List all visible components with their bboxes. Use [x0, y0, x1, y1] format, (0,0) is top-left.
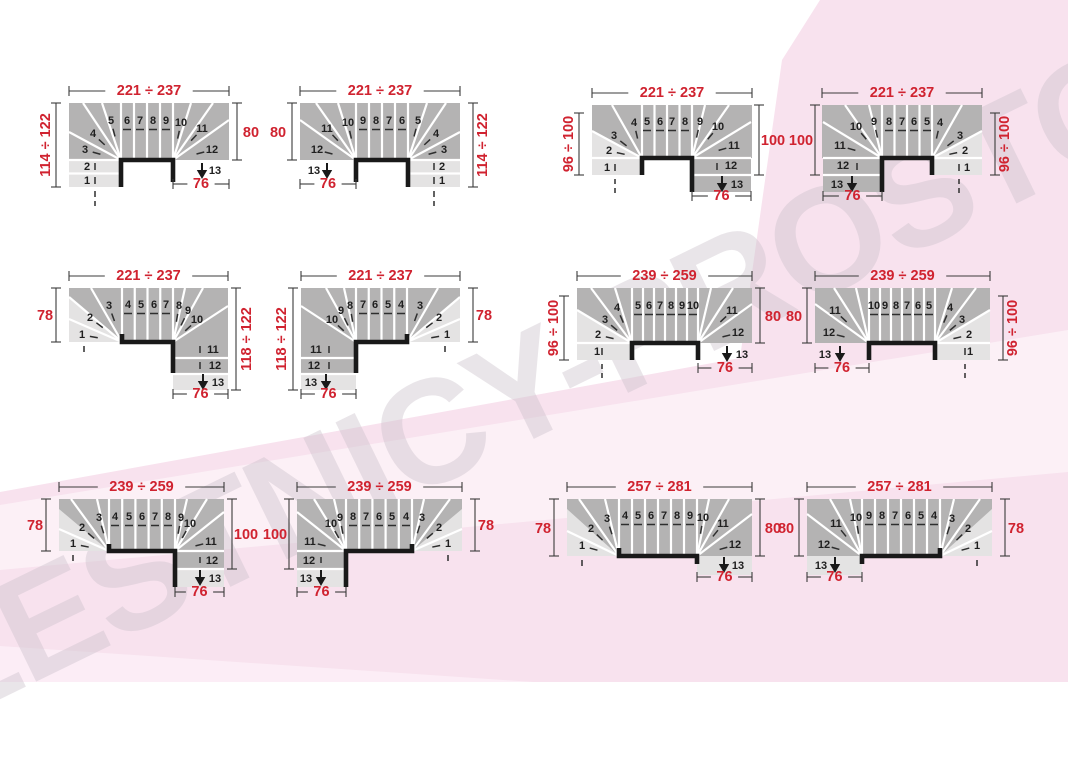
step-number: 4 — [947, 302, 954, 314]
step-number: 13 — [300, 573, 312, 585]
step-number: 1 — [445, 538, 451, 550]
step-number: 7 — [899, 116, 905, 128]
dim-top-label: 221 ÷ 237 — [348, 268, 412, 284]
step-number: 11 — [830, 518, 842, 530]
stairwell-edge-line — [356, 160, 408, 187]
step-number: 6 — [657, 116, 663, 128]
step-number: 11 — [728, 140, 740, 152]
step-number: 12 — [823, 327, 835, 339]
step-number: 3 — [106, 300, 112, 312]
stairwell-edge-line — [882, 158, 932, 192]
step-number: 2 — [595, 329, 601, 341]
dim-bottom-label: 76 — [320, 386, 336, 402]
step-number: 8 — [886, 116, 892, 128]
step-number: 12 — [308, 360, 320, 372]
step-number: 7 — [657, 300, 663, 312]
dim-bottom-label: 76 — [826, 569, 842, 585]
step-number: 7 — [892, 510, 898, 522]
step-number: 3 — [604, 513, 610, 525]
step-number: 7 — [904, 300, 910, 312]
step-number: 5 — [926, 300, 932, 312]
step-number: 4 — [403, 511, 410, 523]
stairwell-edge-line — [109, 544, 175, 587]
step-number: 13 — [212, 377, 224, 389]
step-number: 3 — [96, 512, 102, 524]
dim-left-label: 80 — [270, 125, 286, 141]
dim-right-label: 78 — [1008, 521, 1024, 537]
step-number: 13 — [736, 349, 748, 361]
dim-left-label: 118 ÷ 122 — [274, 307, 290, 371]
step-number: 12 — [303, 555, 315, 567]
dim-bottom-label: 76 — [844, 188, 860, 204]
step-number: 4 — [433, 128, 440, 140]
step-number: 2 — [965, 523, 971, 535]
step-number: 7 — [363, 511, 369, 523]
step-number: 3 — [441, 144, 447, 156]
step-number: 1 — [79, 329, 85, 341]
step-number: 2 — [436, 312, 442, 324]
step-number: 1 — [604, 162, 610, 174]
step-number: 3 — [959, 314, 965, 326]
step-number: 7 — [386, 115, 392, 127]
step-number: 8 — [150, 115, 156, 127]
step-number: 6 — [915, 300, 921, 312]
dim-top-label: 221 ÷ 237 — [116, 268, 180, 284]
step-number: 6 — [376, 511, 382, 523]
dim-top-label: 239 ÷ 259 — [347, 479, 411, 495]
step-number: 2 — [84, 161, 90, 173]
step-number: 10 — [175, 117, 187, 129]
dim-right-label: 78 — [476, 308, 492, 324]
dim-right-label: 96 ÷ 100 — [1005, 300, 1021, 356]
step-number: 11 — [207, 344, 219, 356]
step-number: 9 — [882, 300, 888, 312]
dim-left-label: 78 — [535, 521, 551, 537]
step-number: 10 — [342, 117, 354, 129]
step-number: 11 — [834, 140, 846, 152]
dim-bottom-label: 76 — [192, 386, 208, 402]
dim-left-label: 114 ÷ 122 — [38, 113, 54, 177]
dim-bottom-label: 76 — [713, 188, 729, 204]
step-number: 8 — [347, 300, 353, 312]
step-number: 3 — [417, 300, 423, 312]
step-number: 12 — [311, 144, 323, 156]
dim-left-label: 100 — [789, 133, 813, 149]
step-number: 11 — [205, 536, 217, 548]
step-number: 8 — [176, 300, 182, 312]
step-number: 2 — [79, 522, 85, 534]
dim-top-label: 221 ÷ 237 — [117, 83, 181, 99]
step-number: 3 — [949, 513, 955, 525]
step-number: 3 — [957, 130, 963, 142]
step-number: 9 — [687, 510, 693, 522]
step-number: 7 — [661, 510, 667, 522]
step-number: 7 — [360, 299, 366, 311]
stairwell-edge-line — [346, 544, 412, 587]
step-number: 7 — [152, 511, 158, 523]
dim-left-label: 78 — [27, 518, 43, 534]
step-number: 6 — [646, 300, 652, 312]
step-number: 4 — [614, 302, 621, 314]
step-number: 8 — [879, 510, 885, 522]
step-number: 10 — [191, 314, 203, 326]
step-number: 4 — [931, 510, 938, 522]
step-number: 11 — [304, 536, 316, 548]
step-number: 8 — [350, 511, 356, 523]
stair-diagram-2: 12345678910111213221 ÷ 23776114 ÷ 12280 — [240, 68, 520, 227]
stair-diagram-4: 12345678910111213221 ÷ 2377696 ÷ 100100 — [762, 70, 1042, 227]
step-number: 13 — [308, 165, 320, 177]
dim-bottom-label: 76 — [320, 176, 336, 192]
step-number: 1 — [70, 538, 76, 550]
step-number: 8 — [893, 300, 899, 312]
step-number: 1 — [594, 346, 600, 358]
stairwell-edge-line — [869, 343, 935, 360]
step-number: 10 — [868, 300, 880, 312]
dim-bottom-label: 76 — [193, 176, 209, 192]
step-number: 6 — [905, 510, 911, 522]
dim-top-label: 257 ÷ 281 — [627, 479, 691, 495]
stair-diagram-8: 12345678910111213239 ÷ 2597696 ÷ 10080 — [755, 253, 1050, 404]
step-number: 6 — [151, 299, 157, 311]
stair-diagram-12: 12345678910111213257 ÷ 281767880 — [747, 464, 1052, 613]
step-number: 8 — [668, 300, 674, 312]
tread-area — [935, 343, 990, 360]
step-number: 4 — [398, 299, 405, 311]
step-number: 10 — [326, 314, 338, 326]
step-number: 3 — [419, 512, 425, 524]
step-number: 10 — [850, 121, 862, 133]
step-number: 11 — [310, 344, 322, 356]
dim-bottom-label: 76 — [717, 360, 733, 376]
step-number: 6 — [648, 510, 654, 522]
stairwell-edge-line — [632, 343, 698, 360]
dim-bottom-label: 76 — [313, 584, 329, 600]
step-number: 2 — [439, 161, 445, 173]
dim-top-label: 239 ÷ 259 — [109, 479, 173, 495]
step-number: 5 — [108, 115, 114, 127]
step-number: 9 — [360, 115, 366, 127]
step-number: 1 — [444, 329, 450, 341]
step-number: 11 — [717, 518, 729, 530]
step-number: 12 — [837, 160, 849, 172]
step-number: 6 — [372, 299, 378, 311]
step-number: 11 — [726, 305, 738, 317]
stair-diagram-6: 12345678910111213221 ÷ 2377678118 ÷ 122 — [241, 253, 520, 428]
dim-left-label: 96 ÷ 100 — [561, 116, 577, 172]
dim-top-label: 221 ÷ 237 — [640, 85, 704, 101]
stairwell-edge-line — [121, 160, 173, 187]
tread-area — [592, 158, 642, 175]
step-number: 4 — [125, 299, 132, 311]
step-number: 4 — [622, 510, 629, 522]
step-number: 8 — [165, 511, 171, 523]
dim-right-label: 114 ÷ 122 — [475, 113, 491, 177]
dim-right-label: 78 — [478, 518, 494, 534]
dim-bottom-label: 76 — [191, 584, 207, 600]
stairwell-edge-line — [122, 334, 173, 373]
step-number: 5 — [635, 300, 641, 312]
step-number: 2 — [966, 329, 972, 341]
dim-left-label: 80 — [786, 309, 802, 325]
dim-bottom-label: 76 — [834, 360, 850, 376]
step-number: 7 — [669, 116, 675, 128]
step-number: 9 — [866, 510, 872, 522]
step-number: 4 — [112, 511, 119, 523]
step-number: 12 — [818, 539, 830, 551]
tread-area — [932, 158, 982, 175]
step-number: 8 — [682, 116, 688, 128]
dim-top-label: 257 ÷ 281 — [867, 479, 931, 495]
step-number: 9 — [337, 512, 343, 524]
step-number: 2 — [588, 523, 594, 535]
tread-area — [577, 343, 632, 360]
step-number: 5 — [415, 115, 421, 127]
step-number: 5 — [924, 116, 930, 128]
step-number: 13 — [209, 573, 221, 585]
step-number: 3 — [611, 130, 617, 142]
step-number: 7 — [163, 299, 169, 311]
step-number: 11 — [196, 123, 208, 135]
stairwell-edge-line — [642, 158, 692, 192]
step-number: 12 — [729, 539, 741, 551]
step-number: 2 — [962, 145, 968, 157]
step-number: 2 — [87, 312, 93, 324]
step-number: 13 — [209, 165, 221, 177]
dim-left-label: 100 — [263, 527, 287, 543]
step-number: 9 — [338, 305, 344, 317]
step-number: 8 — [373, 115, 379, 127]
step-number: 11 — [829, 305, 841, 317]
step-number: 12 — [209, 360, 221, 372]
step-number: 10 — [325, 518, 337, 530]
step-number: 5 — [385, 299, 391, 311]
step-number: 5 — [389, 511, 395, 523]
step-number: 10 — [184, 518, 196, 530]
step-number: 6 — [124, 115, 130, 127]
step-number: 13 — [819, 349, 831, 361]
step-number: 5 — [126, 511, 132, 523]
step-number: 13 — [305, 377, 317, 389]
step-number: 4 — [631, 117, 638, 129]
dim-top-label: 221 ÷ 237 — [870, 85, 934, 101]
dim-left-label: 78 — [37, 308, 53, 324]
step-number: 10 — [712, 121, 724, 133]
step-number: 9 — [871, 116, 877, 128]
step-number: 12 — [725, 160, 737, 172]
step-number: 2 — [436, 522, 442, 534]
step-number: 5 — [918, 510, 924, 522]
step-number: 10 — [850, 512, 862, 524]
step-number: 4 — [937, 117, 944, 129]
step-number: 13 — [831, 179, 843, 191]
step-number: 1 — [967, 346, 973, 358]
stair-plan-grid: 12345678910111213221 ÷ 23776114 ÷ 122801… — [0, 0, 1068, 682]
step-number: 1 — [964, 162, 970, 174]
step-number: 5 — [138, 299, 144, 311]
step-number: 1 — [84, 175, 90, 187]
step-number: 11 — [321, 123, 333, 135]
step-number: 8 — [674, 510, 680, 522]
step-number: 5 — [635, 510, 641, 522]
dim-right-label: 96 ÷ 100 — [997, 116, 1013, 172]
dim-top-label: 239 ÷ 259 — [870, 268, 934, 284]
step-number: 6 — [399, 115, 405, 127]
step-number: 2 — [606, 145, 612, 157]
step-number: 13 — [731, 179, 743, 191]
step-number: 1 — [579, 540, 585, 552]
step-number: 7 — [137, 115, 143, 127]
step-number: 13 — [815, 560, 827, 572]
step-number: 6 — [139, 511, 145, 523]
stairwell-edge-line — [356, 334, 407, 373]
step-number: 10 — [687, 300, 699, 312]
dim-top-label: 221 ÷ 237 — [348, 83, 412, 99]
step-number: 9 — [697, 116, 703, 128]
dim-left-label: 80 — [778, 521, 794, 537]
step-number: 13 — [732, 560, 744, 572]
step-number: 10 — [697, 512, 709, 524]
step-number: 12 — [206, 144, 218, 156]
dim-left-label: 96 ÷ 100 — [546, 300, 562, 356]
step-number: 3 — [602, 314, 608, 326]
step-number: 9 — [679, 300, 685, 312]
dim-bottom-label: 76 — [716, 569, 732, 585]
dim-top-label: 239 ÷ 259 — [632, 268, 696, 284]
step-number: 4 — [90, 128, 97, 140]
stair-diagram-10: 12345678910111213239 ÷ 2597678100 — [237, 464, 522, 627]
step-number: 3 — [82, 144, 88, 156]
step-number: 5 — [644, 116, 650, 128]
step-number: 12 — [732, 327, 744, 339]
step-number: 1 — [439, 175, 445, 187]
step-number: 12 — [206, 555, 218, 567]
step-number: 9 — [163, 115, 169, 127]
step-number: 1 — [974, 540, 980, 552]
step-number: 6 — [911, 116, 917, 128]
